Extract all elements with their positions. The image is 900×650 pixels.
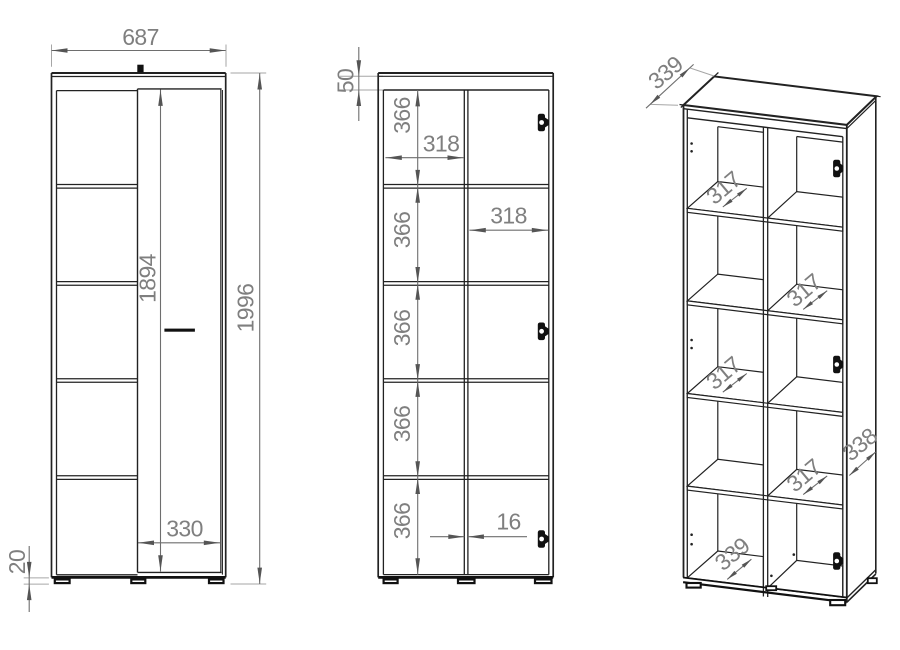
svg-text:687: 687 [122, 24, 159, 50]
svg-text:366: 366 [389, 97, 415, 134]
svg-text:318: 318 [423, 130, 460, 156]
svg-text:20: 20 [4, 550, 30, 574]
svg-text:16: 16 [496, 508, 520, 534]
svg-text:50: 50 [333, 69, 359, 93]
svg-text:366: 366 [389, 310, 415, 347]
svg-text:1996: 1996 [232, 284, 258, 333]
svg-text:318: 318 [490, 202, 527, 228]
svg-text:330: 330 [166, 515, 203, 541]
svg-text:366: 366 [389, 503, 415, 540]
svg-text:366: 366 [389, 406, 415, 443]
svg-text:1894: 1894 [135, 253, 161, 303]
svg-text:366: 366 [389, 212, 415, 249]
